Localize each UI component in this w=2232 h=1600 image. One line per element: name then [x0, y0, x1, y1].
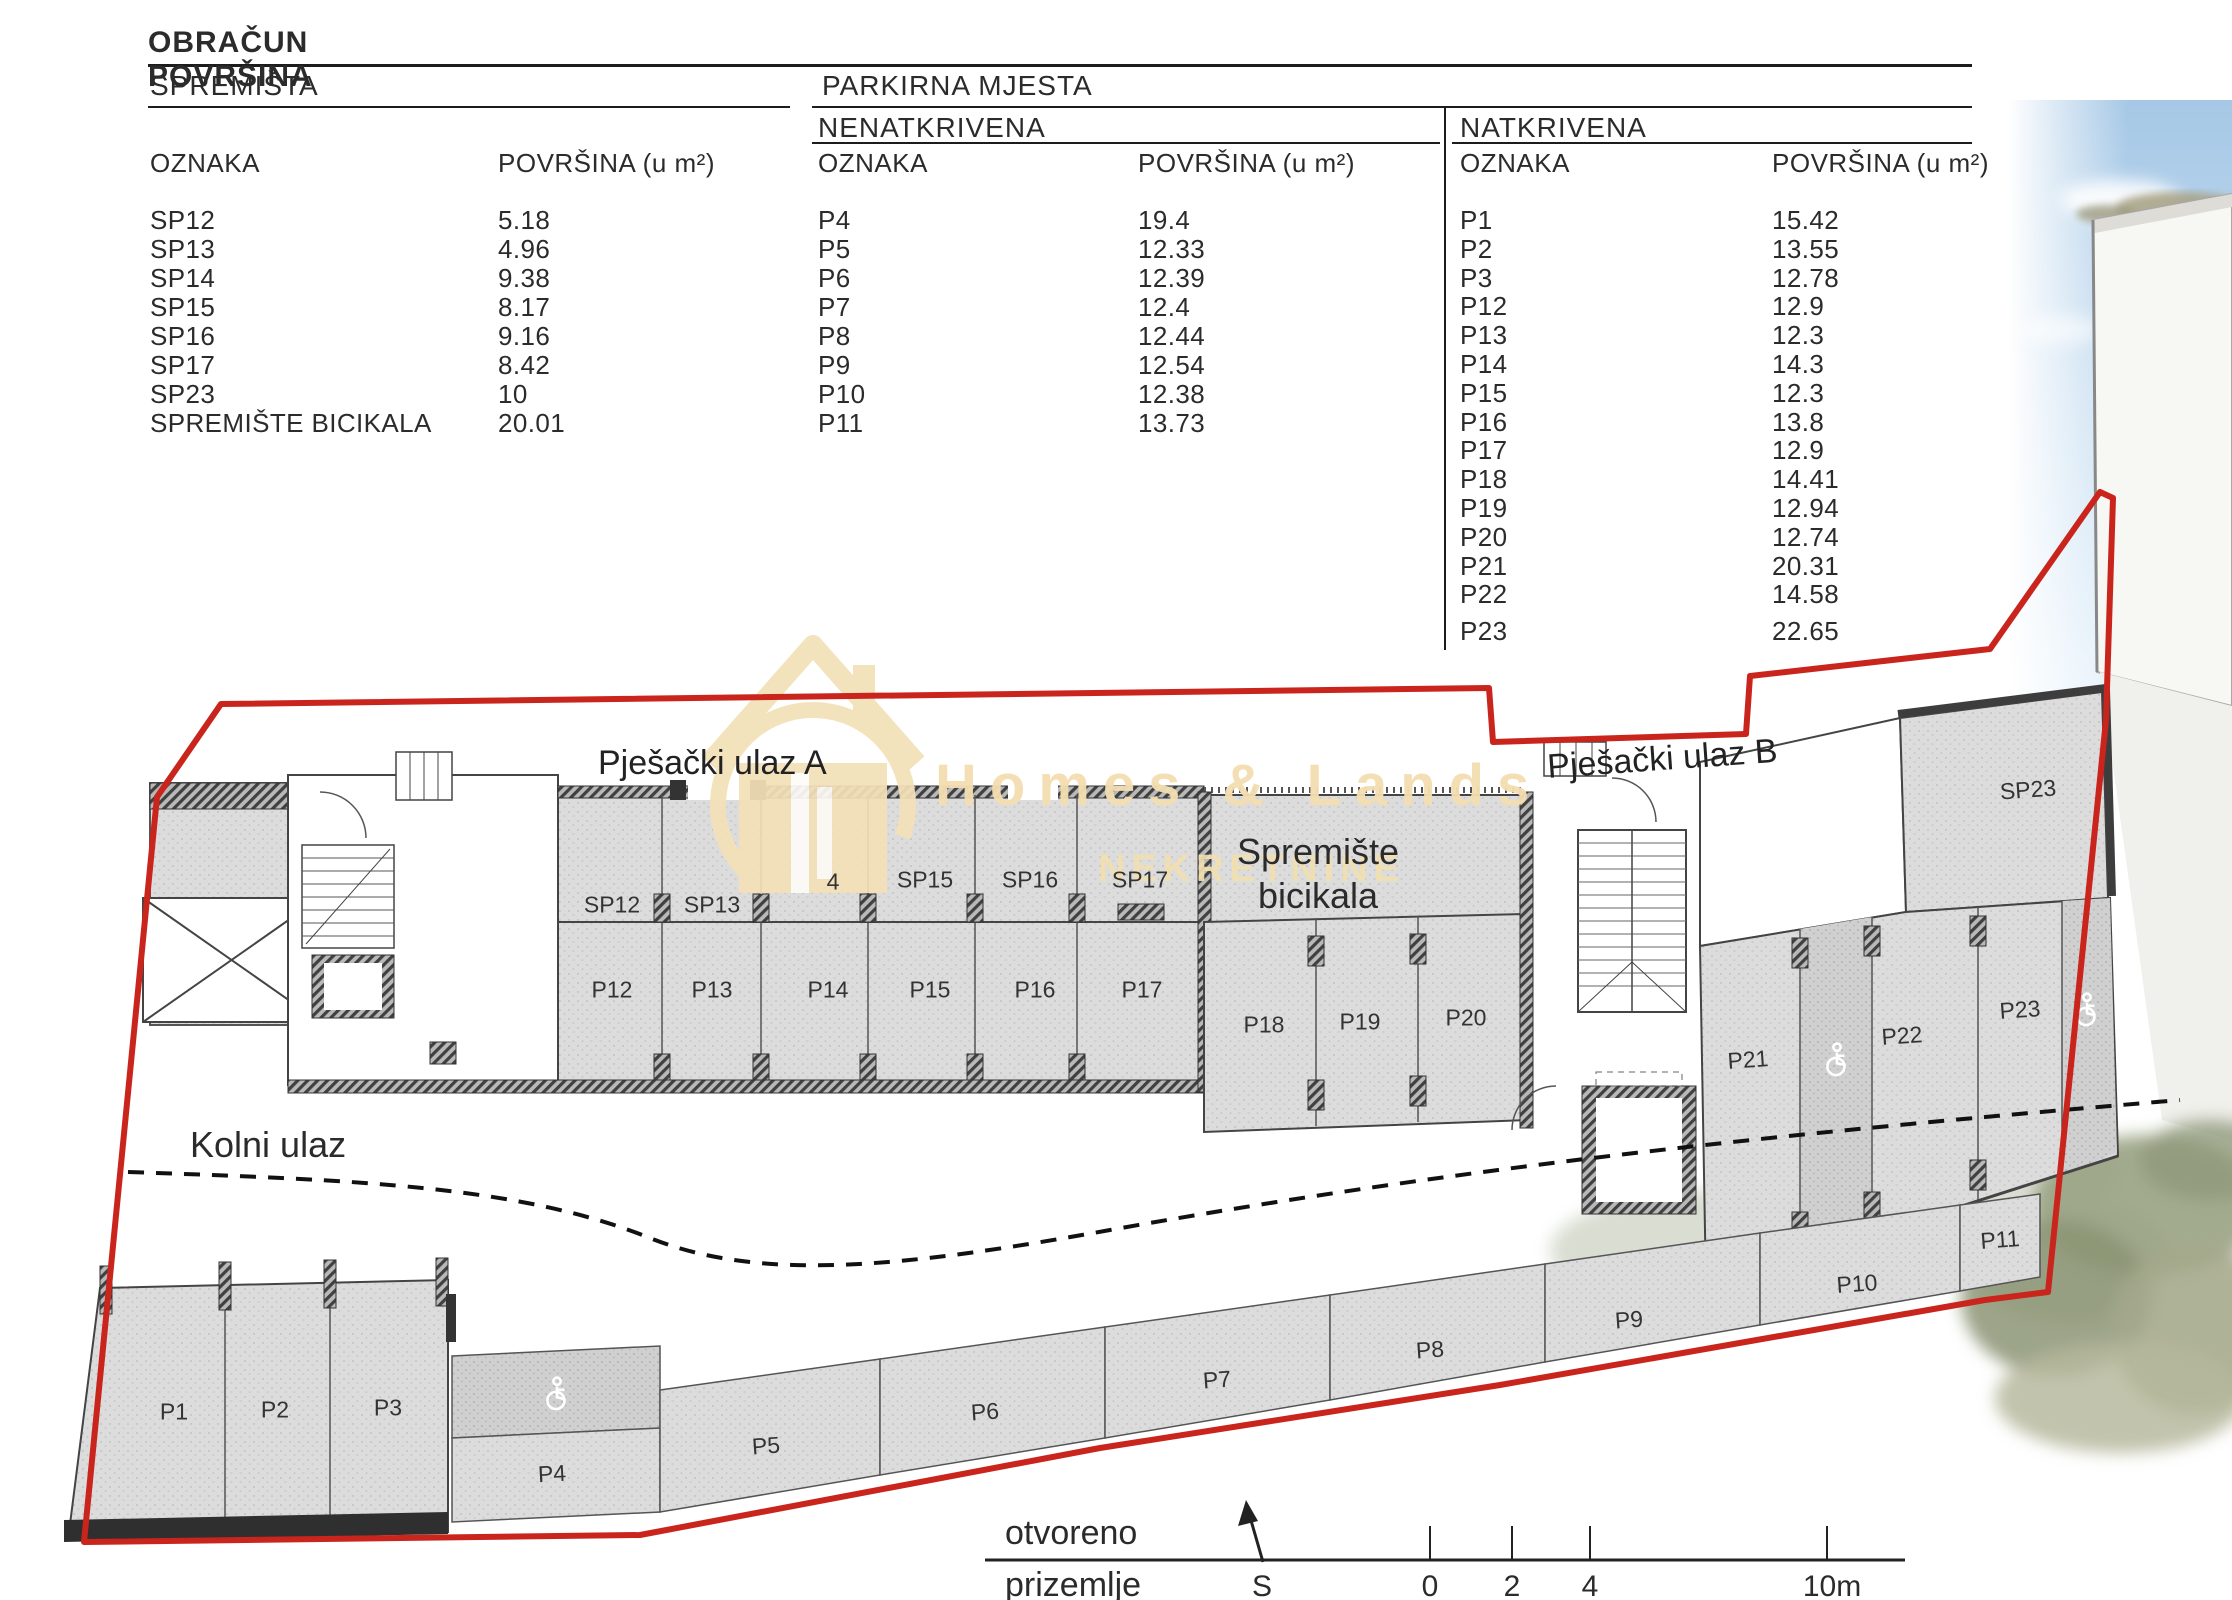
room-label-p1: P1	[160, 1399, 188, 1426]
row-oznaka: P11	[818, 408, 864, 438]
entrance-b-block	[1512, 742, 1696, 1214]
row-oznaka: P3	[1460, 263, 1493, 293]
room-label-sp13: SP13	[684, 892, 740, 919]
row-povrsina: 12.44	[1138, 321, 1205, 352]
row-povrsina: 9.38	[498, 263, 550, 294]
row-oznaka: SP16	[150, 321, 215, 351]
room-label-p19: P19	[1340, 1009, 1381, 1036]
table-row: SP169.16	[150, 321, 215, 352]
room-label-p7: P7	[1202, 1366, 1232, 1395]
table-row: P312.78	[1460, 263, 1493, 294]
page: Homes & Lands NEKRETNINE OBRAČUN POVRŠIN…	[0, 0, 2232, 1600]
room-label-p15: P15	[910, 977, 951, 1004]
room-label-p18: P18	[1244, 1012, 1285, 1039]
room-label-p9: P9	[1614, 1306, 1644, 1335]
row-oznaka: P4	[818, 205, 851, 235]
table-row: P1512.3	[1460, 378, 1507, 409]
table-row: SP149.38	[150, 263, 215, 294]
row-povrsina: 13.55	[1772, 234, 1839, 265]
row-oznaka: P14	[1460, 349, 1507, 379]
room-label-p20: P20	[1446, 1005, 1487, 1032]
col-povrsina: POVRŠINA (u m²)	[1138, 148, 1355, 179]
disabled-stall-strip	[1800, 917, 1872, 1258]
row-oznaka: SP23	[150, 379, 215, 409]
disabled-stall-strip	[2062, 898, 2117, 1176]
row-oznaka: P1	[1460, 205, 1493, 235]
row-oznaka: P12	[1460, 291, 1507, 321]
north-arrow	[1238, 1500, 1263, 1562]
row-oznaka: P9	[818, 350, 851, 380]
row-oznaka: P16	[1460, 407, 1507, 437]
table-row: P2120.31	[1460, 551, 1507, 582]
entrance-a-block	[288, 752, 558, 1085]
legend-otvoreno: otvoreno	[1005, 1514, 1137, 1553]
row-oznaka: P7	[818, 292, 851, 322]
room-label-p3: P3	[374, 1395, 402, 1422]
table-row: P2322.65	[1460, 616, 1507, 647]
row-povrsina: 14.58	[1772, 579, 1839, 610]
row-povrsina: 14.41	[1772, 464, 1839, 495]
table-row: P2012.74	[1460, 522, 1507, 553]
room-label-sp12: SP12	[584, 892, 640, 919]
table-row: P419.4	[818, 205, 851, 236]
row-povrsina: 12.38	[1138, 379, 1205, 410]
row-povrsina: 15.42	[1772, 205, 1839, 236]
row-oznaka: P21	[1460, 551, 1507, 581]
row-povrsina: 13.73	[1138, 408, 1205, 439]
table-row: P1212.9	[1460, 291, 1507, 322]
row-povrsina: 12.9	[1772, 291, 1824, 322]
room-label-4: 4	[827, 869, 840, 896]
row-oznaka: P17	[1460, 435, 1507, 465]
table-row: P2214.58	[1460, 579, 1507, 610]
row-povrsina: 12.9	[1772, 435, 1824, 466]
table-row: P1712.9	[1460, 435, 1507, 466]
col-povrsina: POVRŠINA (u m²)	[498, 148, 715, 179]
row-povrsina: 12.54	[1138, 350, 1205, 381]
row-povrsina: 8.17	[498, 292, 550, 323]
row-povrsina: 12.78	[1772, 263, 1839, 294]
table-row: SPREMIŠTE BICIKALA20.01	[150, 408, 432, 439]
table-row: P1312.3	[1460, 320, 1507, 351]
row-oznaka: SP14	[150, 263, 215, 293]
section-spremista: SPREMIŠTA	[150, 70, 319, 102]
room-label-p17: P17	[1122, 977, 1163, 1004]
room-label-sp15: SP15	[897, 867, 953, 894]
row-povrsina: 12.4	[1138, 292, 1190, 323]
row-povrsina: 20.31	[1772, 551, 1839, 582]
room-label-sp23: SP23	[1999, 775, 2057, 806]
row-oznaka: P19	[1460, 493, 1507, 523]
row-oznaka: P10	[818, 379, 865, 409]
table-row: P512.33	[818, 234, 851, 265]
room-label-p5: P5	[751, 1432, 781, 1461]
table-row: P115.42	[1460, 205, 1493, 236]
section-nenatkrivena: NENATKRIVENA	[818, 112, 1046, 144]
room-label-p23: P23	[1999, 995, 2042, 1025]
site-plan-svg	[0, 0, 2232, 1600]
table-row: SP178.42	[150, 350, 215, 381]
row-oznaka: P13	[1460, 320, 1507, 350]
room-label-p2: P2	[261, 1397, 289, 1424]
room-label-p13: P13	[692, 977, 733, 1004]
room-label-p22: P22	[1881, 1021, 1924, 1051]
scale-tick-label: 2	[1504, 1570, 1521, 1600]
south-wall	[288, 1080, 1204, 1093]
col-oznaka: OZNAKA	[150, 148, 260, 179]
row-povrsina: 12.74	[1772, 522, 1839, 553]
row-povrsina: 9.16	[498, 321, 550, 352]
table-row: P1113.73	[818, 408, 864, 439]
room-label-p6: P6	[970, 1398, 1000, 1427]
row-povrsina: 22.65	[1772, 616, 1839, 647]
row-oznaka: SP12	[150, 205, 215, 235]
table-row: P213.55	[1460, 234, 1493, 265]
row-povrsina: 10	[498, 379, 528, 410]
row-povrsina: 8.42	[498, 350, 550, 381]
row-povrsina: 20.01	[498, 408, 565, 439]
table-row: SP125.18	[150, 205, 215, 236]
row-povrsina: 14.3	[1772, 349, 1824, 380]
section-parkirna: PARKIRNA MJESTA	[822, 70, 1093, 102]
room-label-p8: P8	[1415, 1336, 1445, 1365]
vent-grate	[1118, 904, 1164, 920]
table-row: P912.54	[818, 350, 851, 381]
row-oznaka: P6	[818, 263, 851, 293]
row-oznaka: P15	[1460, 378, 1507, 408]
room-label-sp17: SP17	[1112, 867, 1168, 894]
parking-row-p4-p11	[446, 1194, 2040, 1522]
table-row: P712.4	[818, 292, 851, 323]
table-row: P1012.38	[818, 379, 865, 410]
row-oznaka: P22	[1460, 579, 1507, 609]
row-povrsina: 19.4	[1138, 205, 1190, 236]
row-oznaka: P18	[1460, 464, 1507, 494]
table-row: P812.44	[818, 321, 851, 352]
row-oznaka: P8	[818, 321, 851, 351]
section-natkrivena: NATKRIVENA	[1460, 112, 1647, 144]
scale-tick-label: 0	[1422, 1570, 1439, 1600]
row-povrsina: 12.3	[1772, 320, 1824, 351]
table-row: SP2310	[150, 379, 215, 410]
room-label-p14: P14	[808, 977, 849, 1004]
col-oznaka: OZNAKA	[818, 148, 928, 179]
table-row: SP134.96	[150, 234, 215, 265]
row-povrsina: 13.8	[1772, 407, 1824, 438]
row-oznaka: SPREMIŠTE BICIKALA	[150, 408, 432, 438]
row-oznaka: P23	[1460, 616, 1507, 646]
entrance-a-label: Pješački ulaz A	[598, 744, 827, 783]
row-povrsina: 12.3	[1772, 378, 1824, 409]
room-label-p12: P12	[592, 977, 633, 1004]
table-row: P1814.41	[1460, 464, 1507, 495]
row-povrsina: 12.39	[1138, 263, 1205, 294]
bike-storage-label-2: bicikala	[1258, 875, 1378, 917]
row-oznaka: SP15	[150, 292, 215, 322]
table-row: P1613.8	[1460, 407, 1507, 438]
row-oznaka: P2	[1460, 234, 1493, 264]
table-row: SP158.17	[150, 292, 215, 323]
row-povrsina: 12.94	[1772, 493, 1839, 524]
scale-tick-label: 4	[1582, 1570, 1599, 1600]
room-label-p11: P11	[1979, 1225, 2020, 1255]
row-povrsina: 4.96	[498, 234, 550, 265]
room-label-p10: P10	[1836, 1269, 1879, 1299]
row-povrsina: 12.33	[1138, 234, 1205, 265]
kolni-ulaz-label: Kolni ulaz	[190, 1124, 346, 1166]
row-oznaka: P20	[1460, 522, 1507, 552]
room-label-p16: P16	[1015, 977, 1056, 1004]
table-row: P1414.3	[1460, 349, 1507, 380]
bike-storage-label-1: Spremište	[1237, 831, 1399, 873]
row-oznaka: SP13	[150, 234, 215, 264]
row-povrsina: 5.18	[498, 205, 550, 236]
col-povrsina: POVRŠINA (u m²)	[1772, 148, 1989, 179]
row-oznaka: P5	[818, 234, 851, 264]
room-label-sp16: SP16	[1002, 867, 1058, 894]
room-label-p21: P21	[1727, 1045, 1770, 1075]
north-label: S	[1252, 1570, 1272, 1600]
room-label-p4: P4	[537, 1460, 567, 1488]
table-row: P612.39	[818, 263, 851, 294]
legend-prizemlje: prizemlje	[1005, 1566, 1141, 1600]
scale-tick-label: 10m	[1803, 1570, 1861, 1600]
table-row: P1912.94	[1460, 493, 1507, 524]
col-oznaka: OZNAKA	[1460, 148, 1570, 179]
row-oznaka: SP17	[150, 350, 215, 380]
